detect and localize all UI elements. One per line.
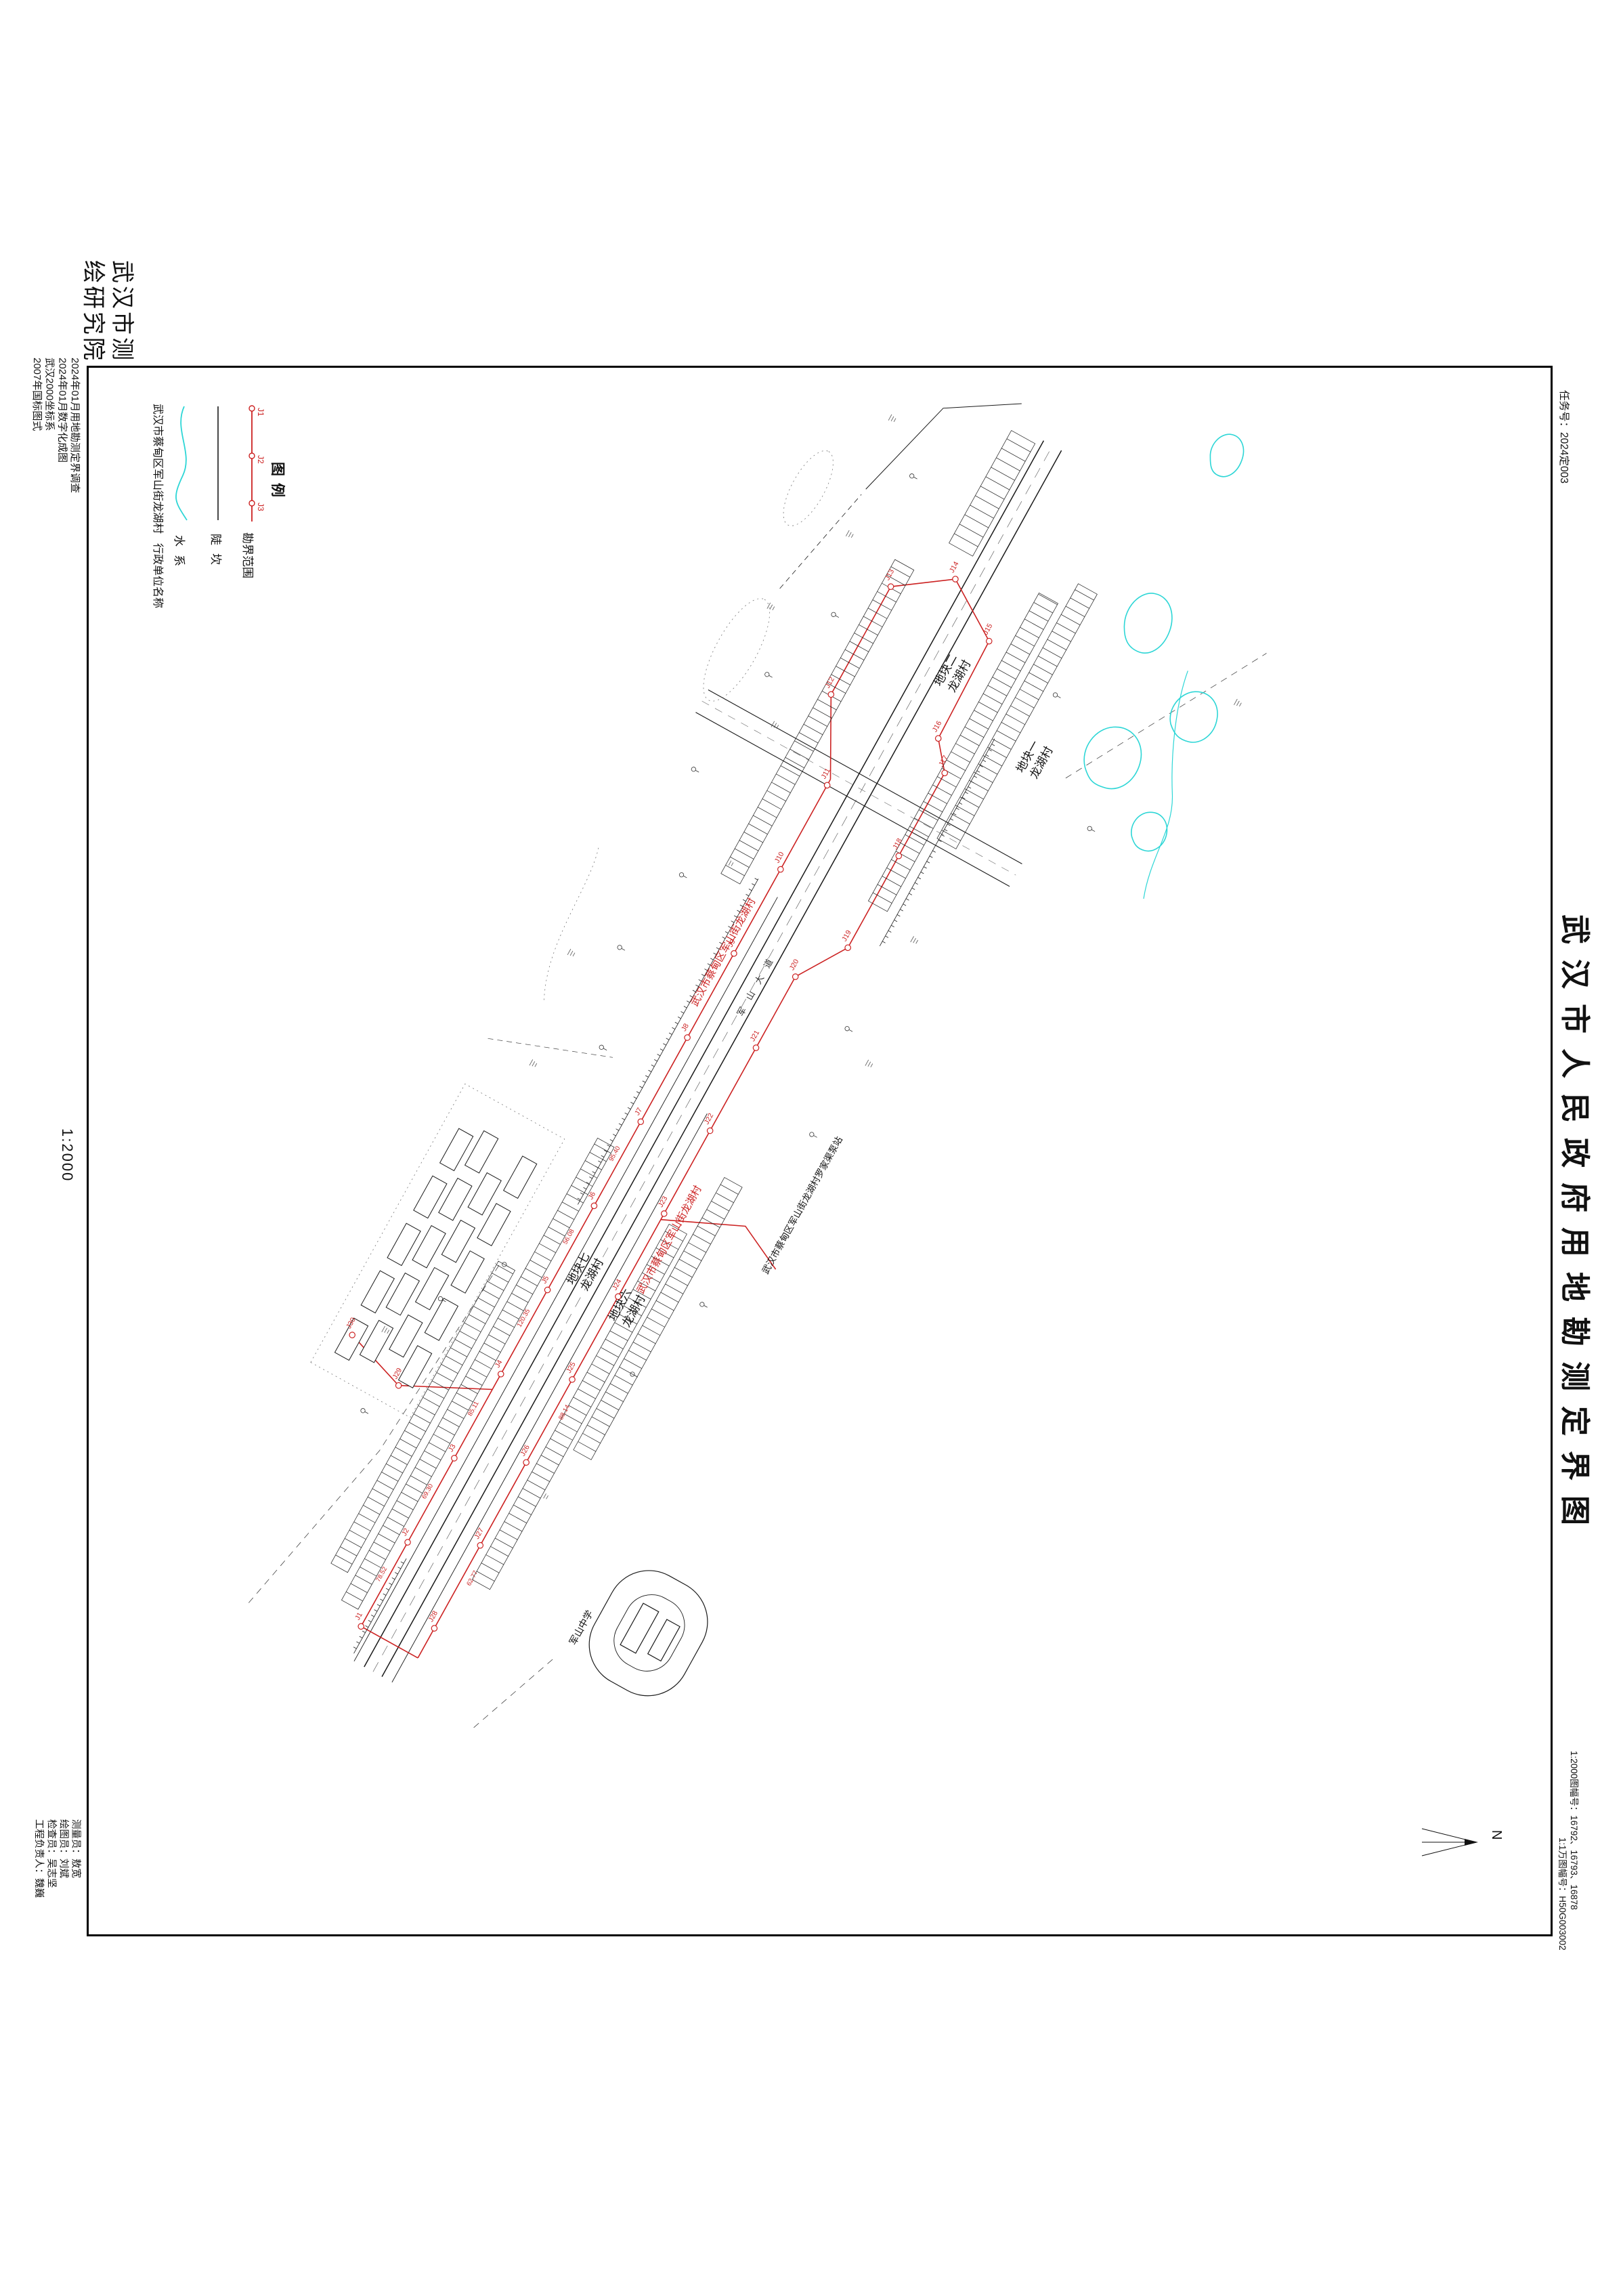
survey-map-drawing: J1J2J3J4J5J6J7J8J9J10J11J12J13J14J15J16J… (87, 366, 1553, 1936)
sheet-numbers: 1:2000图幅号：16792、16793、16878 1:1万图幅号：H50G… (1556, 1751, 1579, 1951)
svg-text:J6: J6 (586, 1191, 597, 1202)
svg-text:J13: J13 (883, 568, 896, 582)
svg-text:J2: J2 (400, 1527, 411, 1537)
school-label: 军山中学 (567, 1609, 595, 1647)
dotted-parcels (307, 444, 918, 1418)
org-name-line: 绘研究院 (79, 260, 108, 363)
info-line: 武汉2000坐标系 (43, 358, 56, 493)
svg-text:J8: J8 (680, 1022, 691, 1033)
main-road (354, 435, 1072, 1682)
pump-station-label: 武汉市蔡甸区军山街龙湖村罗家渠泵站 (760, 1134, 844, 1275)
staff-line: 测量员：敖宽 (69, 1819, 81, 1898)
svg-text:62.77: 62.77 (465, 1569, 479, 1587)
staff-line: 绘图员：刘斌 (57, 1819, 69, 1898)
svg-text:J1: J1 (353, 1611, 364, 1622)
drawing-info: 2024年01月用地勘测定界调查 2024年01月数字化成图 武汉2000坐标系… (30, 358, 81, 493)
survey-sheet: 武汉市测 绘研究院 2024年01月用地勘测定界调查 2024年01月数字化成图… (0, 0, 1600, 2296)
sheet-title: 武汉市人民政府用地勘测定界图 (1556, 914, 1599, 1540)
org-name: 武汉市测 绘研究院 (79, 260, 136, 363)
svg-text:J7: J7 (633, 1106, 644, 1117)
svg-text:J5: J5 (540, 1275, 550, 1285)
north-arrow (1419, 1822, 1500, 1865)
map-scale: 1:2000 (58, 1128, 76, 1182)
svg-text:J20: J20 (788, 958, 801, 972)
info-line: 2007年国标图式 (30, 358, 43, 493)
ponds (1004, 429, 1361, 899)
svg-text:88.14: 88.14 (557, 1403, 571, 1421)
svg-text:J15: J15 (982, 622, 995, 637)
staff-line: 检查员：吴志坚 (45, 1819, 57, 1898)
staff-block: 测量员：敖宽 绘图员：刘斌 检查员：吴志坚 工程负责人：魏巍 (33, 1819, 82, 1898)
sheet-number-line: 1:2000图幅号：16792、16793、16878 (1567, 1751, 1579, 1951)
svg-text:120.35: 120.35 (516, 1308, 532, 1329)
minor-roads (192, 366, 1315, 1811)
org-name-line: 武汉市测 (108, 260, 137, 363)
sheet-number-line: 1:1万图幅号：H50G003002 (1556, 1837, 1567, 1951)
staff-line: 工程负责人：魏巍 (33, 1819, 45, 1898)
admin-boundary-text: 武汉市蔡甸区军山街龙湖村 (634, 1184, 704, 1296)
survey-boundary (231, 501, 1110, 1718)
info-line: 2024年01月数字化成图 (56, 358, 68, 493)
task-number: 任务号：2024定003 (1557, 390, 1572, 484)
svg-text:J14: J14 (948, 560, 961, 574)
map-generated-symbols: J1J2J3J4J5J6J7J8J9J10J11J12J13J14J15J16J… (208, 366, 1303, 1806)
info-line: 2024年01月用地勘测定界调查 (68, 358, 81, 493)
school-area (574, 1556, 722, 1711)
road-name-label: 军山大道 (735, 949, 779, 1018)
svg-text:J17: J17 (937, 754, 950, 768)
svg-text:J3: J3 (447, 1443, 458, 1453)
cross-road (695, 690, 1022, 887)
north-label: N (1488, 1830, 1504, 1840)
